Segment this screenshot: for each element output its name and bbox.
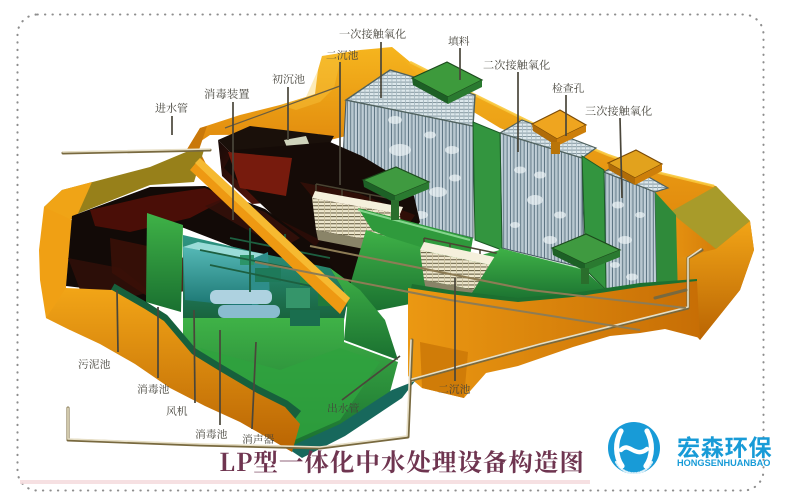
svg-text:HONGSENHUANBAO: HONGSENHUANBAO xyxy=(677,458,770,468)
